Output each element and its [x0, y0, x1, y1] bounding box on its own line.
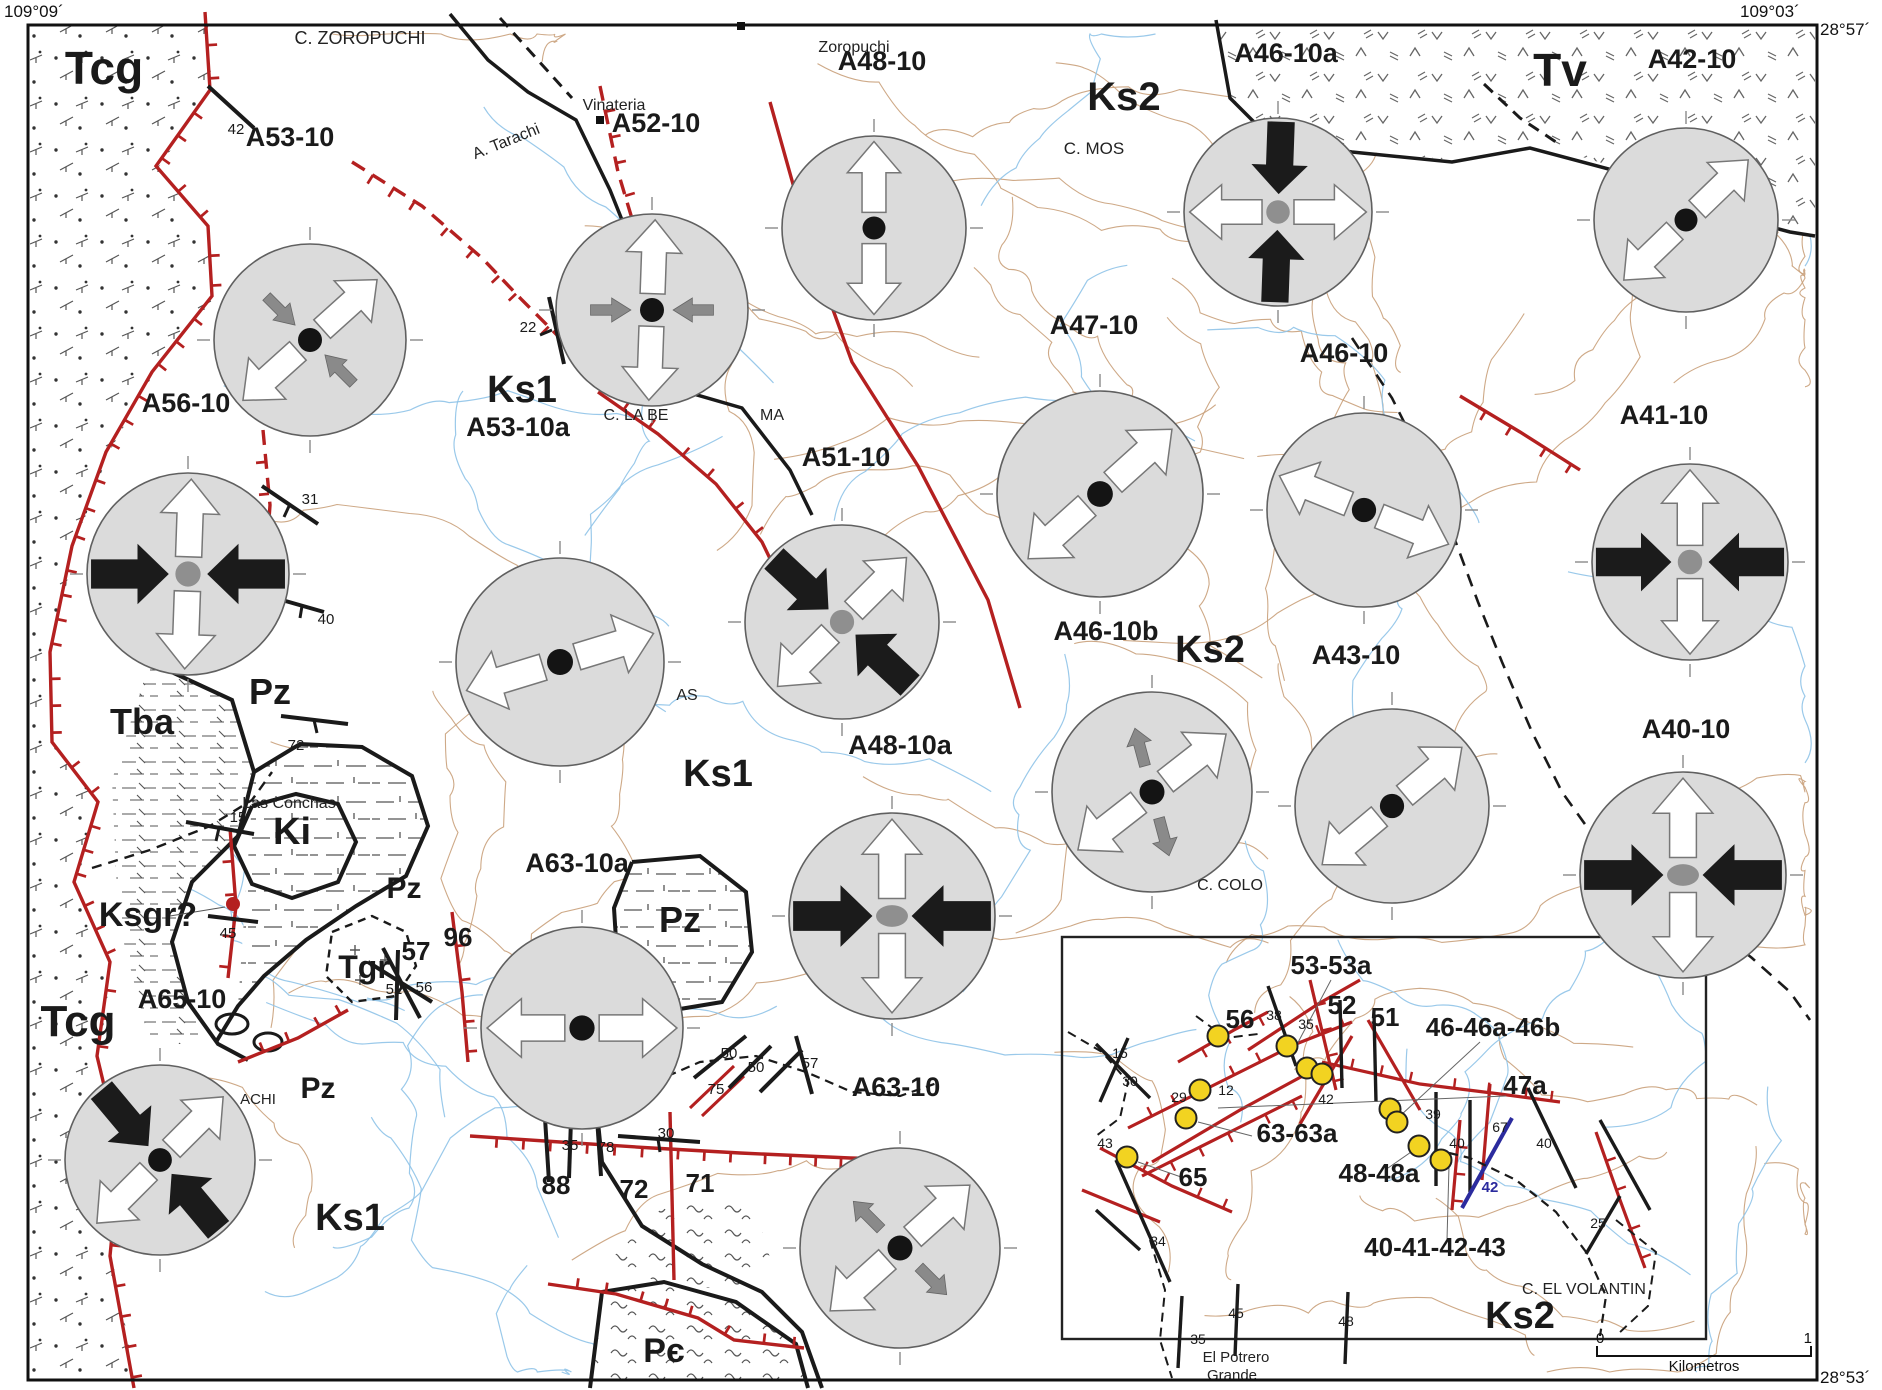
place-label: C. EL VOLANTIN [1522, 1281, 1646, 1298]
unit-label: Ks1 [683, 753, 753, 795]
stress-station-A48-10a [772, 796, 1012, 1036]
inset-station-group-label: 47a [1503, 1070, 1547, 1100]
fault-hachure [98, 1046, 108, 1047]
fault-hachure [223, 861, 233, 862]
fault-hachure [606, 1283, 607, 1293]
coordinate-longitude-top-left: 109°09´ [4, 2, 64, 22]
fault-hachure [1480, 411, 1485, 420]
fault-hachure [158, 364, 166, 370]
dip-number: 52 [386, 981, 403, 998]
station-center-dot [1266, 200, 1290, 224]
unit-area-pc2 [612, 1196, 770, 1288]
fault-hachure [1202, 1048, 1207, 1057]
inset-dip-number: 40 [1449, 1135, 1465, 1151]
inset-fault [1452, 1120, 1460, 1210]
fault-hachure [127, 1345, 137, 1347]
unit-label: Tgr [338, 949, 390, 985]
fault-hachure [616, 161, 626, 163]
inset-station-dot [1176, 1108, 1197, 1129]
place-label: El Potrero [1203, 1349, 1270, 1366]
place-label: ACHI [240, 1091, 276, 1108]
inset-black-fault [1096, 1210, 1140, 1250]
terrain-line [371, 1117, 608, 1372]
station-center-dot [876, 905, 908, 927]
fault-hachure [1164, 1173, 1169, 1182]
scale-end-label: 1 [1804, 1332, 1812, 1346]
place-label: C. MOS [1064, 139, 1124, 158]
inset-dip-number: 34 [1150, 1233, 1166, 1249]
station-center-dot [547, 649, 573, 675]
inset-dip-number: 30 [1122, 1073, 1138, 1089]
inset-black-fault [1528, 1088, 1576, 1188]
dip-number-large: 72 [620, 1174, 649, 1204]
fault-hachure [1455, 1174, 1465, 1175]
station-label: A42-10 [1648, 44, 1737, 74]
fault-hachure [465, 1021, 475, 1022]
fault-hachure [492, 276, 499, 283]
inset-fault [1082, 1190, 1160, 1222]
fault-hachure [1641, 1254, 1650, 1257]
fault-hachure [256, 462, 266, 463]
red-sample-dot [226, 897, 240, 911]
stream-lines-layer [161, 34, 1811, 1374]
place-label: C. ZOROPUCHI [294, 28, 425, 48]
dip-number: 50 [721, 1045, 738, 1062]
inset-station-group-label: 63-63a [1257, 1118, 1338, 1148]
fault-hachure [467, 1051, 477, 1052]
inset-station-group-label: 46-46a-46b [1426, 1012, 1560, 1042]
fault-hachure [467, 250, 474, 258]
station-label: A51-10 [802, 442, 891, 472]
dip-number: 48 [1338, 1313, 1354, 1329]
inset-dip-number: 42 [1318, 1091, 1334, 1107]
fault-hachure [1223, 1199, 1227, 1208]
dip-number: 15 [230, 809, 247, 826]
fault-hachure [614, 1146, 615, 1156]
dip-number: 22 [520, 319, 537, 336]
station-center-dot [1140, 780, 1165, 805]
station-label: A48-10a [848, 730, 953, 760]
scale-bar: 0 1 Kilometros [1596, 1332, 1812, 1375]
dip-number: 40 [318, 611, 335, 628]
unit-boundary-dashed [500, 18, 572, 98]
unit-label: Ksgr? [99, 896, 197, 934]
inset-station-dot [1312, 1064, 1333, 1085]
station-center-dot [148, 1148, 172, 1172]
stress-station-A41-10 [1575, 447, 1805, 677]
station-label: A48-10 [838, 46, 927, 76]
station-center-dot [1675, 209, 1698, 232]
inset-station-group-label: 53-53a [1291, 950, 1372, 980]
station-center-dot [1352, 498, 1376, 522]
unit-label: Tv [1533, 44, 1587, 96]
fault-hachure [1256, 1053, 1260, 1062]
unit-label: Pz [386, 872, 421, 905]
unit-label: Tcg [41, 997, 116, 1046]
dip-number: 30 [658, 1125, 675, 1142]
fault-hachure [678, 1149, 679, 1159]
station-center-dot [298, 328, 322, 352]
station-center-dot [888, 1236, 913, 1261]
scale-start-label: 0 [1596, 1332, 1604, 1346]
inset-dip-number: 39 [1425, 1106, 1441, 1122]
inset-pointer-line [1447, 1166, 1449, 1240]
stress-station-A53-10 [197, 227, 423, 453]
fault-hachure [1171, 1162, 1175, 1171]
unit-label: Ks2 [1485, 1295, 1555, 1337]
stress-station-A52-10 [539, 197, 765, 423]
station-label: A40-10 [1642, 714, 1731, 744]
unit-label: Pє [643, 1332, 684, 1370]
station-label: A53-10 [246, 122, 335, 152]
station-label: A63-10 [852, 1072, 941, 1102]
fault-hachure [794, 1337, 795, 1347]
inset-station-group-label: 51 [1371, 1002, 1400, 1032]
fault-hachure [704, 1151, 705, 1161]
unit-label: Ks1 [315, 1197, 385, 1239]
inset-dip-number: 12 [1218, 1082, 1234, 1098]
stress-station-A43-10 [1278, 692, 1506, 920]
inset-station-group-label: 40-41-42-43 [1364, 1232, 1506, 1262]
inset-station-group-label: 56 [1226, 1004, 1255, 1034]
fault-hachure [1616, 1187, 1625, 1190]
stress-station-A47-10 [980, 374, 1220, 614]
terrain-line [1764, 1163, 1809, 1235]
dip-number-large: 88 [542, 1170, 571, 1200]
fault-hachure [441, 228, 448, 236]
station-label: A47-10 [1050, 310, 1139, 340]
stress-station-A63-10 [783, 1131, 1017, 1365]
stress-station-A40-10 [1563, 755, 1803, 995]
station-label: A46-10 [1300, 338, 1389, 368]
geologic-map-svg: TcgTvKs2Ks1Ks1Ks2PzTbaKiPzKsgr?TgrPzTcgP… [0, 0, 1882, 1390]
station-center-dot [175, 561, 200, 586]
dip-number: 72 [288, 737, 305, 754]
fault-hachure [1381, 1065, 1383, 1075]
fault-hachure [1259, 1017, 1264, 1026]
fault-hachure [106, 990, 116, 991]
fault-hachure [1410, 1072, 1412, 1082]
fault-hachure [577, 1278, 578, 1288]
inset-dip-number: 43 [1097, 1135, 1113, 1151]
inset-dip-number: 35 [1298, 1016, 1314, 1032]
station-label: A65-10 [138, 984, 227, 1014]
dip-number: 42 [228, 121, 245, 138]
map-stage: TcgTvKs2Ks1Ks1Ks2PzTbaKiPzKsgr?TgrPzTcgP… [0, 0, 1882, 1390]
unit-label: Ks2 [1087, 75, 1160, 119]
inset-dip-number: 38 [1266, 1007, 1282, 1023]
station-label: A46-10b [1053, 616, 1158, 646]
dip-number: 57 [802, 1055, 819, 1072]
fault-hachure [336, 1005, 341, 1014]
fault-hachure [285, 1032, 289, 1041]
unit-label: Pz [249, 671, 291, 712]
scale-unit-label: Kilometros [1596, 1358, 1812, 1375]
inset-dip-number: 15 [1112, 1045, 1128, 1061]
dip-number-large: 57 [402, 936, 431, 966]
dip-number: 31 [302, 491, 319, 508]
fault-hachure [1606, 1158, 1615, 1161]
inset-station-dot [1387, 1112, 1408, 1133]
fault-hachure [707, 469, 714, 477]
fault-hachure [1631, 1225, 1640, 1228]
station-label: A46-10a [1234, 38, 1339, 68]
unit-label: Pz [659, 899, 701, 940]
inset-dip-number: 29 [1171, 1089, 1187, 1105]
fault-hachure [461, 979, 471, 980]
fault-hachure [209, 78, 219, 79]
station-center-dot [640, 298, 664, 322]
fault-hachure [200, 211, 208, 218]
unit-label: Tcg [65, 42, 143, 94]
dip-number: 35 [562, 1137, 579, 1154]
fault-hachure [388, 188, 393, 196]
inset-dip-number: 25 [1590, 1215, 1606, 1231]
town-square-marker [596, 116, 604, 124]
dip-number-large: 96 [444, 922, 473, 952]
fault-hachure [1230, 1066, 1234, 1075]
station-center-dot [1678, 550, 1703, 575]
fault-hachure [1199, 1147, 1203, 1156]
fault-hachure [550, 1141, 551, 1151]
inset-dip-number: 67 [1492, 1119, 1508, 1135]
fault-hachure [116, 1285, 126, 1287]
fault-hachure [1147, 1107, 1151, 1116]
fault-hachure [176, 341, 184, 347]
fault-hachure [91, 787, 99, 793]
fault-hachure [1566, 464, 1571, 472]
fault-hachure [1228, 1133, 1232, 1142]
fault-hachure [764, 1333, 765, 1343]
fault-hachure [194, 319, 202, 325]
fault-hachure [219, 966, 229, 967]
terrain-line [1436, 1198, 1695, 1331]
fault-hachure [368, 175, 373, 183]
fault-hachure [409, 201, 414, 209]
fault-hachure [211, 285, 221, 286]
stress-station-A53-10a [439, 541, 681, 783]
dip-number-large: 71 [686, 1168, 715, 1198]
inset-station-dot [1409, 1136, 1430, 1157]
station-label: A53-10a [466, 412, 571, 442]
dip-number: 56 [416, 979, 433, 996]
dip-number: 50 [748, 1059, 765, 1076]
unit-label: Ks2 [1175, 629, 1245, 671]
strike-dip-symbol [760, 1050, 802, 1092]
inset-station-group-label: 65 [1179, 1162, 1208, 1192]
station-center-dot [863, 217, 886, 240]
fault-hachure [72, 761, 80, 767]
fault-hachure [1454, 1078, 1455, 1088]
fault-hachure [496, 1138, 497, 1148]
unit-label: Ki [273, 811, 311, 853]
station-center-dot [1380, 794, 1404, 818]
terrain-line [1695, 1087, 1781, 1372]
station-label: A52-10 [612, 108, 701, 138]
inset-station-dot [1190, 1080, 1211, 1101]
fault-hachure [1506, 427, 1511, 436]
fault-hachure [1351, 1059, 1353, 1069]
fault-hachure [85, 902, 94, 906]
inset-dashed [1616, 1220, 1656, 1334]
coordinate-latitude-top-right: 28°57´ [1820, 20, 1870, 40]
dip-number: 45 [1228, 1305, 1244, 1321]
inset-fault [1596, 1132, 1645, 1268]
place-label: AS [676, 687, 697, 704]
place-label: C. COLO [1197, 877, 1263, 894]
dip-number: 35 [1190, 1331, 1206, 1347]
place-label: MA [760, 407, 784, 424]
fault-hachure [106, 950, 115, 954]
fault-hachure [1316, 1025, 1320, 1034]
fault-hachure [225, 894, 235, 895]
fault-hachure [642, 1147, 643, 1157]
unit-label: Tba [110, 701, 175, 742]
place-label: Las Conchas [242, 795, 335, 812]
station-center-dot [830, 610, 854, 634]
dip-tick [300, 606, 302, 618]
fault-hachure [523, 1140, 524, 1150]
fault-hachure [121, 1315, 131, 1317]
inset-black-fault [1116, 1160, 1170, 1282]
terrain-line [496, 1265, 571, 1374]
fault-hachure [1540, 448, 1545, 456]
terrain-line [1770, 228, 1811, 387]
dip-number: 75 [708, 1081, 725, 1098]
station-label: A63-10a [525, 848, 630, 878]
fault-hachure [207, 45, 217, 46]
fault-hachure [1328, 1054, 1338, 1056]
fault-hachure [132, 1376, 142, 1378]
unit-label: Ks1 [487, 369, 557, 411]
dip-number: 78 [598, 1139, 615, 1156]
fault-hachure [736, 502, 744, 508]
coordinate-longitude-top-right: 109°03´ [1740, 2, 1800, 22]
stress-station-A46-10b [1035, 675, 1269, 909]
station-center-dot [569, 1015, 594, 1040]
place-label: A. Tarachi [470, 121, 542, 163]
fault-hachure [178, 185, 186, 192]
station-label: A41-10 [1620, 400, 1709, 430]
fault-red [238, 1010, 348, 1062]
inset-black-fault [1178, 1296, 1182, 1368]
dip-tick [284, 504, 290, 517]
inset-station-dot [1431, 1150, 1452, 1171]
fault-hachure [509, 294, 516, 301]
unit-label: Pz [300, 1072, 335, 1105]
fault-hachure [1551, 1091, 1552, 1101]
fault-hachure [625, 193, 635, 196]
inset-station-dot [1277, 1036, 1298, 1057]
coordinate-latitude-bottom-right: 28°53´ [1820, 1368, 1870, 1388]
inset-blue-dip-number: 42 [1482, 1179, 1499, 1196]
inset-station-group-label: 48-48a [1339, 1158, 1420, 1188]
inset-station-dot [1117, 1147, 1138, 1168]
scale-bar-line [1596, 1346, 1812, 1357]
station-label: A43-10 [1312, 640, 1401, 670]
inset-station-group-label: 52 [1328, 990, 1357, 1020]
station-center-dot [1087, 481, 1113, 507]
fault-red [1460, 396, 1580, 470]
stress-station-A48-10 [765, 119, 983, 337]
stress-station-A46-10 [1250, 396, 1478, 624]
dip-number: 45 [220, 925, 237, 942]
fault-hachure [730, 1152, 731, 1162]
fault-hachure [259, 494, 269, 495]
fault-hachure [1453, 1201, 1463, 1202]
fault-hachure [210, 255, 220, 256]
station-label: A56-10 [142, 388, 231, 418]
fault-hachure [587, 1144, 588, 1154]
inset-dip-number: 40 [1536, 1135, 1552, 1151]
station-center-dot [1667, 864, 1699, 886]
place-label: C. LA BE [604, 407, 669, 424]
